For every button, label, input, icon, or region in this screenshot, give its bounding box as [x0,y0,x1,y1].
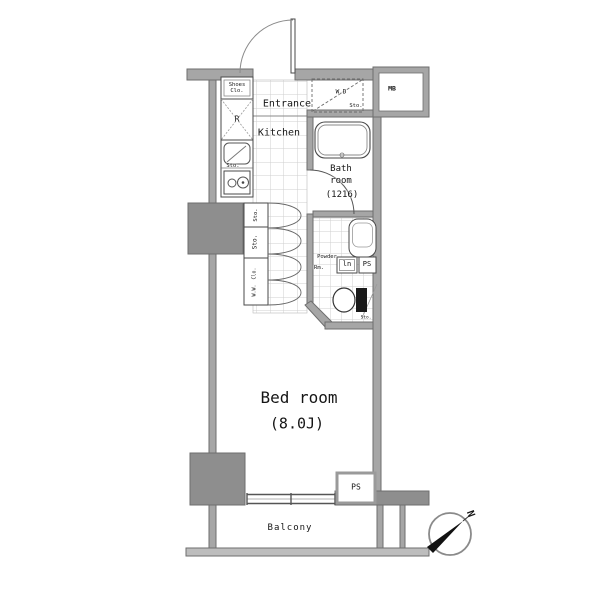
entrance-door-swing-arc [240,20,293,73]
refrigerator-label: R [235,116,240,125]
compass-arrow [427,521,463,553]
bathtub [315,122,370,158]
bath-label-2: room [330,176,352,186]
bath-label-3: (1216) [326,190,359,200]
balcony-label: Balcony [268,523,313,533]
floor-plan: Shoes Clo. Entrance Kitchen W.D Sto. MB … [0,0,600,599]
meter-box-label: MB [388,85,396,92]
washbasin [349,219,376,257]
balcony-railing [186,548,429,556]
column-lower-left [190,453,245,505]
bath-top-wall [307,110,373,117]
bedroom-label: Bed room [260,389,337,407]
toilet-bowl [333,288,355,312]
powder-room-label-2: Rm. [314,265,324,271]
balcony-partition-wall [400,505,405,548]
kitchen-label: Kitchen [258,127,300,138]
sink-storage-label: Sto. [226,163,239,169]
stove-burner-dot [242,181,245,184]
meter-box [373,67,429,117]
floorplan-linework [0,0,600,599]
linen-label: ln [343,261,351,269]
powder-room-label-1: Powder [317,254,337,260]
bedroom-size-label: (8.0J) [270,416,324,433]
pipe-space-powder-label: PS [363,261,371,269]
stove-burner-left [228,179,236,187]
kitchen-unit [221,77,253,197]
bath-label-1: Bath [330,164,352,174]
right-wall [373,117,381,505]
storage-1-label: Sto. [253,208,259,221]
powder-bottom-wall [325,322,373,329]
meter-box-interior [379,73,423,111]
shoes-closet-label: Shoes Clo. [229,82,246,94]
storage-2-label: Sto. [253,235,260,249]
top-wall-right [295,69,373,80]
pipe-space-bedroom-label: PS [351,484,361,493]
column-upper-left [188,203,243,254]
bath-left-wall [307,117,313,170]
bath-powder-divider [313,211,373,217]
wd-storage-label-2: Sto. [349,103,362,109]
entrance-door-leaf [291,19,295,73]
entrance-door [240,19,295,73]
closet-label: W.W. Clo. [253,266,260,297]
entrance-label: Entrance [263,98,311,109]
toilet-tank [356,288,367,312]
bedroom-window [247,493,335,505]
balcony-right-wall [377,505,383,548]
toilet-storage-label: Sto. [361,315,372,320]
powder-left-wall [307,214,313,305]
wd-storage-label-1: W.D [336,90,347,97]
compass-icon [427,513,471,555]
